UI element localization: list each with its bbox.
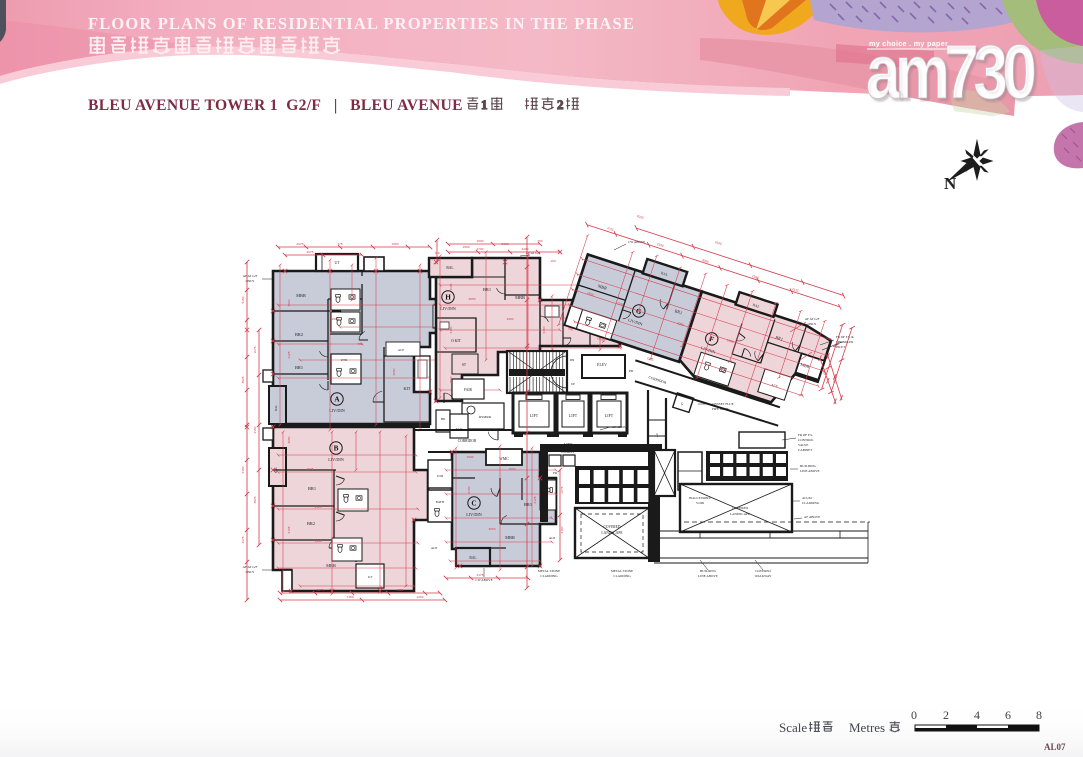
svg-text:2150: 2150 [467,486,471,493]
svg-text:LIFT: LIFT [605,414,614,418]
svg-text:LINE ABOVE: LINE ABOVE [800,469,820,473]
svg-text:1500: 1500 [392,242,399,246]
svg-text:2150: 2150 [241,466,245,473]
svg-text:H: H [445,294,451,302]
svg-text:FAIR: FAIR [464,388,473,392]
svg-text:METAL STONE: METAL STONE [538,569,560,573]
svg-text:CLADDING: CLADDING [802,501,820,505]
svg-text:WALKWAY: WALKWAY [755,574,772,578]
svg-text:UT: UT [334,261,340,265]
svg-text:CLADDING: CLADDING [540,574,558,578]
svg-text:KIT: KIT [404,386,411,391]
svg-text:CLADDING: CLADDING [613,574,631,578]
svg-text:1500: 1500 [509,467,516,471]
svg-text:ALUM: ALUM [802,496,812,500]
svg-text:750: 750 [357,342,362,346]
svg-text:Scale: Scale [779,720,807,735]
svg-text:LANDSCAPE: LANDSCAPE [730,512,750,516]
svg-text:2150: 2150 [542,326,546,333]
svg-text:AC: AC [655,433,659,437]
svg-text:BLEU AVENUE TOWER 1 G2/F |: BLEU AVENUE TOWER 1 G2/F | BLEU AVENUE [88,97,463,114]
svg-text:INACCESSIBLE: INACCESSIBLE [689,496,712,500]
svg-text:7150: 7150 [347,595,354,599]
svg-text:AF ABOVE: AF ABOVE [804,515,820,519]
svg-text:FLOOR PLANS OF RESIDENTIAL PRO: FLOOR PLANS OF RESIDENTIAL PROPERTIES IN… [88,14,635,33]
svg-text:LANDSCAPE: LANDSCAPE [601,531,623,535]
svg-text:1500: 1500 [449,376,453,383]
svg-text:BAL: BAL [274,405,278,411]
svg-text:am730: am730 [866,29,1034,115]
svg-text:150: 150 [434,251,439,255]
svg-text:BAL: BAL [446,266,453,270]
svg-text:3825: 3825 [241,376,245,383]
svg-text:RSMRR: RSMRR [479,415,492,419]
svg-text:FR OF F.S. &: FR OF F.S. & [836,335,854,339]
svg-text:COVERED: COVERED [755,569,771,573]
svg-text:BUILDING: BUILDING [800,464,817,468]
svg-text:PIPE DUCT: PIPE DUCT [712,407,729,411]
svg-text:CONTROL: CONTROL [798,438,814,442]
svg-text:N: N [944,174,957,193]
svg-text:2150: 2150 [449,326,453,333]
svg-text:LIV/DIN: LIV/DIN [329,408,345,413]
svg-text:PD: PD [629,369,634,373]
svg-text:1500: 1500 [315,539,322,543]
svg-text:LIFT: LIFT [530,414,539,418]
svg-text:MBR: MBR [296,293,306,298]
svg-text:O KIT: O KIT [451,339,462,343]
svg-text:ONLY: ONLY [808,322,817,326]
svg-text:4275: 4275 [241,536,245,543]
svg-text:2700: 2700 [477,247,484,251]
svg-text:1075: 1075 [253,346,257,353]
svg-text:2100: 2100 [502,242,509,246]
svg-text:2125: 2125 [533,496,537,503]
svg-text:1: 1 [481,97,488,112]
svg-text:UP: UP [571,382,575,386]
svg-text:LIV/DIN: LIV/DIN [328,457,344,462]
svg-text:150: 150 [550,259,555,263]
svg-text:PD: PD [553,471,558,475]
svg-text:1500: 1500 [477,239,484,243]
svg-text:8: 8 [1036,708,1042,722]
svg-text:2675: 2675 [307,467,314,471]
svg-text:AF AT G/F: AF AT G/F [243,565,258,569]
svg-text:VOID: VOID [696,501,705,505]
svg-text:3825: 3825 [253,496,257,503]
svg-text:MBR: MBR [515,295,525,300]
svg-text:2125: 2125 [315,505,322,509]
svg-text:1500: 1500 [397,588,404,592]
svg-text:2: 2 [943,708,949,722]
svg-text:4200: 4200 [522,247,529,251]
svg-text:1500: 1500 [467,455,474,459]
svg-text:CW ABOVE: CW ABOVE [475,578,492,582]
svg-text:MBR: MBR [326,563,336,568]
svg-text:3650: 3650 [469,297,476,301]
svg-text:B: B [334,445,339,453]
svg-text:3600: 3600 [287,299,291,306]
svg-text:GENSET FLUE: GENSET FLUE [712,402,734,406]
svg-text:BR2: BR2 [307,521,315,526]
svg-text:2125: 2125 [287,526,291,533]
svg-text:AL07: AL07 [1044,742,1066,752]
svg-text:4: 4 [974,708,980,722]
svg-text:2075: 2075 [307,250,314,254]
svg-text:CABINET: CABINET [798,448,812,452]
svg-text:VALVE: VALVE [798,443,808,447]
svg-text:3050: 3050 [287,436,291,443]
svg-text:1075: 1075 [560,486,564,493]
svg-text:1500: 1500 [507,317,514,321]
svg-text:ONLY: ONLY [529,256,538,260]
svg-text:2: 2 [557,97,564,112]
svg-text:775: 775 [337,242,342,246]
svg-text:1200: 1200 [417,595,424,599]
svg-text:0: 0 [911,708,917,722]
svg-text:COVERED: COVERED [732,506,749,510]
svg-text:1500: 1500 [332,317,339,321]
svg-text:750: 750 [537,239,542,243]
svg-text:DN: DN [570,358,575,362]
svg-text:METAL STONE: METAL STONE [611,569,633,573]
svg-text:6: 6 [1005,708,1011,722]
svg-text:1500: 1500 [463,245,470,249]
svg-text:WMC: WMC [499,457,509,461]
svg-text:AF AT G/F: AF AT G/F [805,317,820,321]
svg-text:CORRIDOR: CORRIDOR [458,439,477,443]
svg-text:BR1: BR1 [524,502,532,507]
svg-text:2150: 2150 [253,426,257,433]
svg-text:LIV/DIN: LIV/DIN [466,512,482,517]
svg-text:FR OF F.S.: FR OF F.S. [798,433,813,437]
svg-text:CW ABOVE: CW ABOVE [628,240,645,244]
svg-text:BAL: BAL [469,556,476,560]
svg-text:A: A [334,396,340,404]
svg-text:AF ABOVE: AF ABOVE [612,425,628,429]
svg-text:2150: 2150 [560,526,564,533]
svg-text:ACP: ACP [431,546,438,550]
svg-text:C: C [471,500,476,508]
svg-text:3175: 3175 [477,573,484,577]
svg-text:ACP: ACP [398,348,405,352]
svg-text:BR2: BR2 [295,332,303,337]
svg-text:BR1: BR1 [308,486,316,491]
svg-text:BUILDING: BUILDING [700,569,717,573]
svg-text:AF AT G/F: AF AT G/F [243,274,258,278]
svg-text:LINE ABOVE: LINE ABOVE [698,574,718,578]
svg-text:BR1: BR1 [295,365,303,370]
svg-text:2125: 2125 [287,351,291,358]
svg-text:INLET: INLET [836,345,845,349]
svg-text:BR1: BR1 [483,287,491,292]
svg-text:BATH: BATH [436,500,445,504]
svg-text:LIFT: LIFT [569,414,578,418]
svg-text:UTR: UTR [437,474,445,478]
svg-text:5150: 5150 [241,296,245,303]
svg-text:2975: 2975 [297,242,304,246]
svg-text:Metres: Metres [849,720,885,735]
svg-text:ELEV: ELEV [597,363,607,367]
svg-text:3050: 3050 [489,527,496,531]
svg-text:2675: 2675 [317,588,324,592]
svg-text:COVERED: COVERED [604,525,621,529]
svg-text:1125: 1125 [449,283,453,290]
svg-text:MBR: MBR [505,535,515,540]
svg-text:2050: 2050 [392,368,396,375]
svg-text:LIV/DIN: LIV/DIN [440,306,456,311]
svg-text:ACP: ACP [549,536,556,540]
